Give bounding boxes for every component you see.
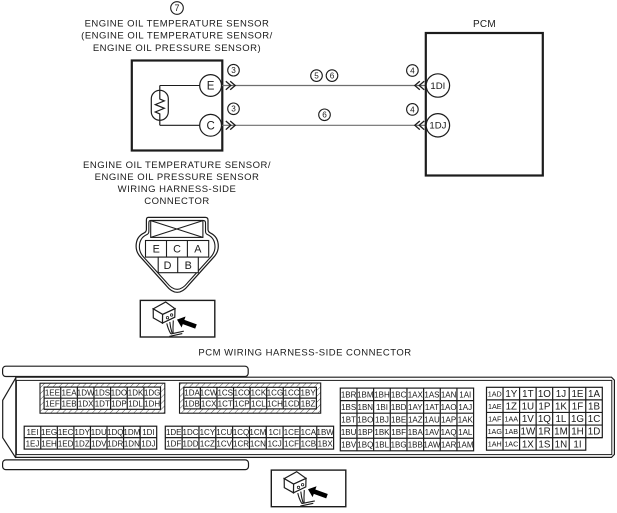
- svg-text:1CM: 1CM: [249, 428, 266, 437]
- svg-text:CONNECTOR: CONNECTOR: [144, 196, 210, 207]
- svg-text:1EA: 1EA: [61, 389, 77, 398]
- svg-text:1DQ: 1DQ: [107, 428, 123, 437]
- svg-text:1CX: 1CX: [201, 399, 217, 408]
- svg-text:1BZ: 1BZ: [301, 399, 316, 408]
- svg-text:1BJ: 1BJ: [375, 415, 389, 424]
- svg-text:1CY: 1CY: [200, 428, 216, 437]
- svg-text:1AF: 1AF: [488, 414, 502, 423]
- svg-text:D: D: [164, 260, 172, 272]
- svg-text:1AP: 1AP: [441, 415, 456, 424]
- svg-text:1DC: 1DC: [183, 428, 199, 437]
- svg-text:1BW: 1BW: [317, 428, 335, 437]
- svg-text:1N: 1N: [555, 439, 568, 450]
- svg-text:B: B: [185, 260, 192, 272]
- svg-text:1AK: 1AK: [458, 415, 474, 424]
- svg-text:1AN: 1AN: [441, 390, 457, 399]
- svg-text:1AI: 1AI: [459, 390, 471, 399]
- svg-text:1E: 1E: [571, 389, 583, 400]
- svg-text:1EG: 1EG: [41, 428, 57, 437]
- svg-text:1AH: 1AH: [488, 440, 502, 449]
- svg-text:6: 6: [330, 72, 335, 81]
- svg-text:1EE: 1EE: [45, 389, 60, 398]
- svg-text:1F: 1F: [572, 402, 583, 413]
- svg-text:1CF: 1CF: [284, 439, 299, 448]
- svg-text:1AG: 1AG: [488, 427, 503, 436]
- svg-text:1BU: 1BU: [341, 428, 357, 437]
- svg-text:1D: 1D: [588, 427, 601, 438]
- svg-text:ENGINE OIL TEMPERATURE SENSOR: ENGINE OIL TEMPERATURE SENSOR: [85, 18, 270, 29]
- svg-text:1R: 1R: [538, 427, 551, 438]
- svg-text:4: 4: [410, 105, 415, 114]
- svg-text:1BP: 1BP: [358, 428, 373, 437]
- svg-text:1DB: 1DB: [184, 399, 200, 408]
- svg-text:1Y: 1Y: [505, 389, 517, 400]
- svg-text:1BF: 1BF: [391, 428, 406, 437]
- svg-text:1U: 1U: [522, 402, 535, 413]
- svg-text:1H: 1H: [571, 427, 584, 438]
- svg-text:1DJ: 1DJ: [429, 121, 446, 132]
- svg-text:1Z: 1Z: [506, 402, 517, 413]
- svg-text:1EJ: 1EJ: [26, 439, 40, 448]
- svg-text:1P: 1P: [538, 402, 550, 413]
- svg-text:1CL: 1CL: [251, 399, 266, 408]
- svg-text:1CO: 1CO: [234, 389, 250, 398]
- svg-text:1CR: 1CR: [233, 439, 249, 448]
- svg-text:A: A: [194, 244, 202, 256]
- svg-text:1CW: 1CW: [200, 389, 218, 398]
- svg-text:1BY: 1BY: [301, 389, 317, 398]
- svg-text:1DG: 1DG: [144, 389, 160, 398]
- svg-text:1CH: 1CH: [267, 399, 283, 408]
- svg-text:1DN: 1DN: [124, 439, 140, 448]
- svg-text:1K: 1K: [555, 402, 567, 413]
- svg-text:1DA: 1DA: [184, 389, 200, 398]
- svg-text:1BB: 1BB: [408, 440, 423, 449]
- svg-text:1EF: 1EF: [45, 400, 60, 409]
- svg-text:1BT: 1BT: [341, 415, 356, 424]
- svg-text:E: E: [207, 81, 215, 93]
- svg-text:1EI: 1EI: [26, 428, 38, 437]
- svg-text:1S: 1S: [538, 439, 550, 450]
- svg-text:1CK: 1CK: [251, 389, 267, 398]
- svg-text:PCM WIRING HARNESS-SIDE CONNEC: PCM WIRING HARNESS-SIDE CONNECTOR: [198, 347, 411, 358]
- svg-text:1AE: 1AE: [488, 402, 502, 411]
- svg-text:3: 3: [231, 105, 236, 114]
- svg-text:1DE: 1DE: [166, 428, 182, 437]
- svg-text:1CU: 1CU: [216, 428, 232, 437]
- svg-text:1AR: 1AR: [441, 440, 457, 449]
- svg-text:1BH: 1BH: [374, 390, 390, 399]
- svg-text:1BV: 1BV: [341, 440, 357, 449]
- svg-text:5: 5: [314, 72, 319, 81]
- svg-text:1BG: 1BG: [391, 440, 407, 449]
- svg-text:1CS: 1CS: [217, 389, 233, 398]
- svg-text:7: 7: [174, 3, 179, 13]
- svg-text:1I: 1I: [573, 439, 581, 450]
- svg-text:6: 6: [322, 111, 327, 120]
- svg-text:1CA: 1CA: [301, 428, 317, 437]
- svg-text:1DJ: 1DJ: [141, 439, 155, 448]
- svg-text:1AJ: 1AJ: [458, 403, 472, 412]
- svg-text:1AB: 1AB: [505, 427, 519, 436]
- svg-text:1DI: 1DI: [142, 428, 154, 437]
- svg-text:1CQ: 1CQ: [233, 428, 249, 437]
- svg-text:1BQ: 1BQ: [357, 440, 373, 449]
- svg-text:C: C: [173, 244, 181, 256]
- svg-text:1DP: 1DP: [111, 400, 127, 409]
- svg-text:1AO: 1AO: [441, 403, 457, 412]
- svg-text:1DI: 1DI: [430, 81, 445, 92]
- svg-text:1J: 1J: [556, 389, 566, 400]
- svg-text:1L: 1L: [555, 414, 566, 425]
- svg-text:1CV: 1CV: [216, 439, 232, 448]
- svg-text:1AZ: 1AZ: [408, 415, 423, 424]
- svg-text:1CN: 1CN: [250, 439, 266, 448]
- svg-text:1DY: 1DY: [74, 428, 90, 437]
- svg-text:1DM: 1DM: [123, 428, 140, 437]
- svg-text:1CD: 1CD: [284, 399, 300, 408]
- svg-text:1CJ: 1CJ: [268, 439, 282, 448]
- svg-text:1CZ: 1CZ: [200, 439, 215, 448]
- svg-text:1DL: 1DL: [128, 400, 143, 409]
- svg-text:4: 4: [410, 66, 415, 75]
- svg-text:1ED: 1ED: [58, 439, 74, 448]
- svg-text:1BO: 1BO: [357, 415, 373, 424]
- svg-text:1AW: 1AW: [423, 440, 440, 449]
- svg-text:1AC: 1AC: [504, 440, 518, 449]
- svg-text:1BE: 1BE: [391, 415, 406, 424]
- svg-text:1BS: 1BS: [341, 403, 356, 412]
- svg-text:1G: 1G: [571, 414, 584, 425]
- svg-text:E: E: [153, 244, 160, 256]
- svg-text:1EC: 1EC: [58, 428, 74, 437]
- svg-text:1AM: 1AM: [457, 440, 474, 449]
- svg-text:1BN: 1BN: [358, 403, 374, 412]
- svg-text:1AV: 1AV: [425, 428, 440, 437]
- svg-text:1DF: 1DF: [166, 439, 181, 448]
- svg-text:1CP: 1CP: [234, 399, 250, 408]
- svg-text:1AS: 1AS: [424, 390, 439, 399]
- svg-text:1A: 1A: [588, 389, 600, 400]
- svg-text:1AY: 1AY: [408, 403, 423, 412]
- svg-text:1DU: 1DU: [91, 428, 107, 437]
- svg-text:1AX: 1AX: [408, 390, 424, 399]
- svg-text:1EH: 1EH: [41, 439, 57, 448]
- svg-text:1DD: 1DD: [183, 439, 199, 448]
- svg-text:1AL: 1AL: [458, 428, 473, 437]
- svg-text:1AQ: 1AQ: [441, 428, 457, 437]
- svg-text:1CG: 1CG: [267, 389, 283, 398]
- svg-text:1Q: 1Q: [538, 414, 551, 425]
- svg-text:WIRING HARNESS-SIDE: WIRING HARNESS-SIDE: [118, 184, 237, 195]
- svg-text:(ENGINE OIL TEMPERATURE SENSOR: (ENGINE OIL TEMPERATURE SENSOR/: [81, 31, 273, 42]
- svg-text:1AD: 1AD: [488, 389, 502, 398]
- svg-text:1DV: 1DV: [91, 439, 107, 448]
- svg-text:PCM: PCM: [473, 19, 496, 30]
- svg-text:1DO: 1DO: [111, 389, 127, 398]
- svg-text:1C: 1C: [588, 414, 601, 425]
- svg-text:1EB: 1EB: [61, 400, 76, 409]
- svg-text:1T: 1T: [522, 389, 533, 400]
- svg-text:1DW: 1DW: [77, 389, 95, 398]
- svg-text:1BR: 1BR: [341, 390, 357, 399]
- svg-text:1DZ: 1DZ: [75, 439, 90, 448]
- svg-text:1DX: 1DX: [78, 400, 94, 409]
- svg-text:1DK: 1DK: [128, 389, 144, 398]
- svg-text:1BD: 1BD: [391, 403, 407, 412]
- svg-text:1CE: 1CE: [284, 428, 300, 437]
- svg-text:1DH: 1DH: [144, 400, 160, 409]
- svg-text:1DT: 1DT: [95, 400, 110, 409]
- svg-text:1BK: 1BK: [374, 428, 390, 437]
- svg-text:ENGINE OIL TEMPERATURE SENSOR/: ENGINE OIL TEMPERATURE SENSOR/: [83, 160, 271, 171]
- svg-text:1BI: 1BI: [376, 403, 388, 412]
- svg-text:1AT: 1AT: [425, 403, 439, 412]
- svg-text:1X: 1X: [522, 439, 534, 450]
- svg-text:1BX: 1BX: [318, 439, 334, 448]
- svg-text:3: 3: [231, 66, 236, 75]
- svg-text:1AA: 1AA: [505, 414, 519, 423]
- svg-text:1BA: 1BA: [408, 428, 424, 437]
- svg-text:ENGINE OIL PRESSURE SENSOR): ENGINE OIL PRESSURE SENSOR): [93, 43, 261, 54]
- svg-text:1O: 1O: [538, 389, 551, 400]
- svg-text:1CB: 1CB: [301, 439, 317, 448]
- svg-text:ENGINE OIL PRESSURE SENSOR: ENGINE OIL PRESSURE SENSOR: [95, 172, 260, 183]
- svg-text:1B: 1B: [588, 402, 600, 413]
- svg-text:1BM: 1BM: [357, 390, 374, 399]
- svg-text:1CI: 1CI: [268, 428, 280, 437]
- svg-text:1AU: 1AU: [424, 415, 440, 424]
- svg-text:C: C: [206, 120, 214, 132]
- svg-text:1CT: 1CT: [218, 399, 233, 408]
- svg-text:1DR: 1DR: [107, 439, 123, 448]
- svg-text:1BC: 1BC: [391, 390, 407, 399]
- svg-text:1DS: 1DS: [95, 389, 111, 398]
- svg-text:1V: 1V: [522, 414, 534, 425]
- svg-text:1W: 1W: [521, 427, 536, 438]
- svg-text:1M: 1M: [554, 427, 568, 438]
- svg-text:1CC: 1CC: [284, 389, 300, 398]
- svg-text:1BL: 1BL: [375, 440, 390, 449]
